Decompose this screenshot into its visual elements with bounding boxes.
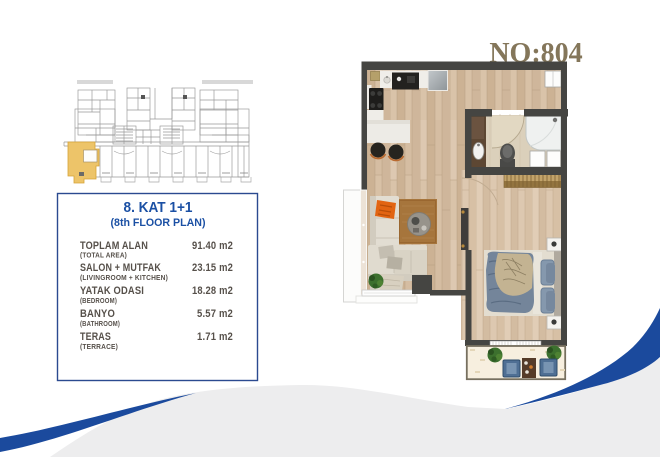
svg-text:18.28 m2: 18.28 m2 xyxy=(192,285,233,297)
svg-text:23.15 m2: 23.15 m2 xyxy=(192,262,233,274)
svg-text:(TERRACE): (TERRACE) xyxy=(80,342,118,351)
svg-text:1.71 m2: 1.71 m2 xyxy=(197,331,233,343)
svg-text:(BEDROOM): (BEDROOM) xyxy=(80,296,117,305)
svg-text:(TOTAL AREA): (TOTAL AREA) xyxy=(80,251,127,260)
svg-text:5.57 m2: 5.57 m2 xyxy=(197,308,233,320)
svg-text:91.40 m2: 91.40 m2 xyxy=(192,240,233,252)
svg-text:(LIVINGROOM + KITCHEN): (LIVINGROOM + KITCHEN) xyxy=(80,273,168,282)
svg-text:(BATHROOM): (BATHROOM) xyxy=(80,319,120,328)
svg-text:(8th FLOOR PLAN): (8th FLOOR PLAN) xyxy=(111,217,206,229)
svg-text:8. KAT 1+1: 8. KAT 1+1 xyxy=(124,200,193,216)
